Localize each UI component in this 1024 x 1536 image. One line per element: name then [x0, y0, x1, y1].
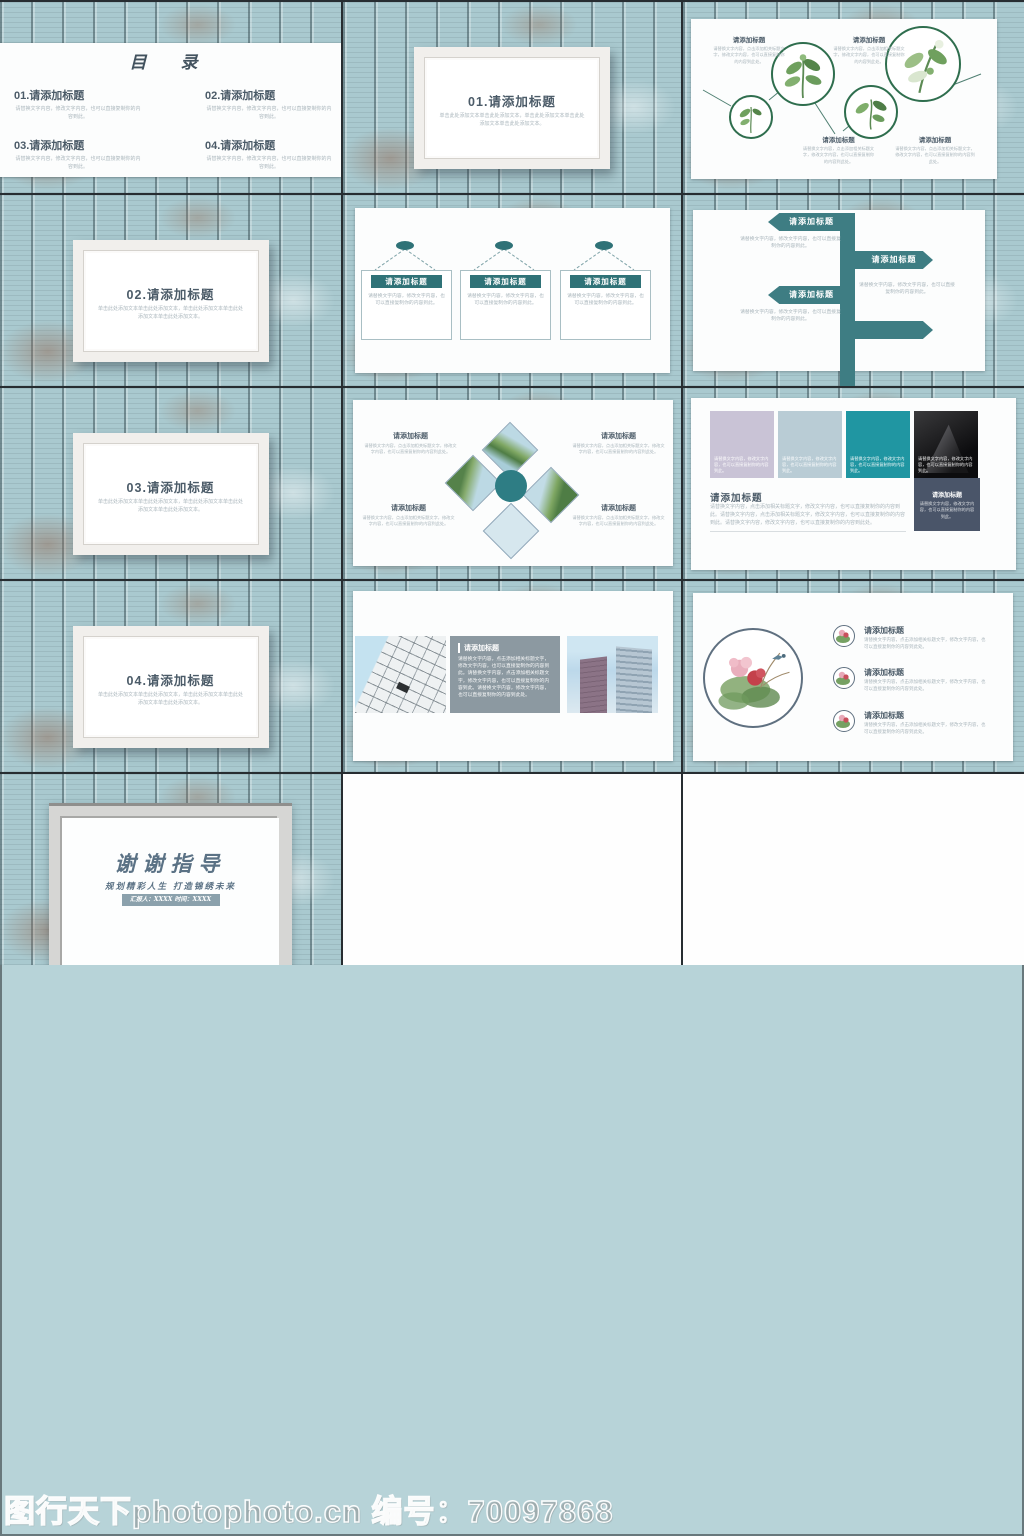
center-circle [495, 470, 527, 502]
tower-left [580, 656, 607, 713]
dark-slate-box: 请添加标题 请替换文字内容，修改文字内容，也可以直接复制你的内容到此。 [914, 478, 980, 531]
dark-box-title: 请添加标题 [914, 490, 980, 499]
plants-item-3: 请添加标题 请替换文字内容，点击添加相关标题文字，修改文字内容，也可以直接复制你… [801, 134, 876, 165]
slide-thumbnail-grid: 目 录 01.请添加标题 请替换文字内容，修改文字内容，也可以直接复制你的内容到… [0, 0, 1024, 965]
lotus-mini-icon [834, 711, 854, 731]
section-title: 03.请添加标题 [83, 477, 259, 496]
diamonds-item-4: 请添加标题 请替换文字内容，点击添加相关标题文字，修改文字内容，也可以直接复制你… [571, 503, 666, 528]
slide-thumb-section-03: 03.请添加标题 单击此处添加文本单击此处添加文本，单击此处添加文本单击此处添加… [0, 388, 341, 579]
slide-thumb-section-04: 04.请添加标题 单击此处添加文本单击此处添加文本，单击此处添加文本单击此处添加… [0, 581, 341, 772]
slide-thumb-colorblocks: 请替换文字内容，修改文字内容，也可以直接复制你的内容到此。 请替换文字内容，修改… [683, 388, 1024, 579]
slide-thumb-section-02: 02.请添加标题 单击此处添加文本单击此处添加文本，单击此处添加文本单击此处添加… [0, 195, 341, 386]
signpost-desc-2: 请替换文字内容，修改文字内容，也可以直接复制你的内容到此。 [858, 282, 956, 296]
hanging-card-1: 请添加标题 请替换文字内容，修改文字内容，也可以直接复制你的内容到此。 [361, 270, 452, 340]
hanging-card-2: 请添加标题 请替换文字内容，修改文字内容，也可以直接复制你的内容到此。 [460, 270, 551, 340]
plants-item-1: 请添加标题 请替换文字内容，点击添加相关标题文字，修改文字内容，也可以直接复制你… [713, 34, 785, 65]
buildings-text-box: 请添加标题 请替换文字内容，点击添加相关标题文字，修改文字内容，也可以直接复制你… [450, 636, 560, 713]
slide-thumb-thanks: 谢谢指导 规划精彩人生 打造锦绣未来 汇报人：XXXX 时间：XXXX [0, 774, 341, 965]
thanks-title: 谢谢指导 [62, 848, 279, 878]
lotus-mini-icon [834, 626, 854, 646]
item-desc: 请替换文字内容，点击添加相关标题文字，修改文字内容，也可以直接复制你的内容到此处… [895, 146, 975, 165]
toc-item-4: 04.请添加标题 请替换文字内容，修改文字内容，也可以直接复制你的内容到此。 [205, 137, 333, 171]
plant-circle-small [729, 95, 773, 139]
lotus-item-desc: 请替换文字内容，点击添加相关标题文字，修改文字内容，也可以直接复制你的内容到此处… [864, 679, 986, 693]
section-title: 04.请添加标题 [83, 670, 259, 689]
card-title: 请添加标题 [570, 275, 641, 288]
lotus-mini-circle [833, 667, 855, 689]
card-desc: 请替换文字内容，修改文字内容，也可以直接复制你的内容到此。 [566, 293, 645, 307]
signpost-arrow-2: 请添加标题 [855, 251, 933, 269]
toc-item-title: 02.请添加标题 [205, 87, 333, 103]
plant-icon [731, 97, 771, 137]
toc-item-desc: 请替换文字内容，修改文字内容，也可以直接复制你的内容到此。 [14, 156, 142, 171]
section-desc: 单击此处添加文本单击此处添加文本，单击此处添加文本单击此处添加文本单击此处添加文… [438, 113, 586, 128]
diamonds-item-1: 请添加标题 请替换文字内容，点击添加相关标题文字，修改文字内容，也可以直接复制你… [363, 431, 458, 456]
card-title: 请添加标题 [470, 275, 541, 288]
color-block-lavender: 请替换文字内容，修改文字内容，也可以直接复制你的内容到此。 [710, 411, 774, 478]
slide-thumb-diamonds: 请添加标题 请替换文字内容，点击添加相关标题文字，修改文字内容，也可以直接复制你… [343, 388, 681, 579]
item-title: 请添加标题 [833, 34, 905, 44]
lotus-item-title: 请添加标题 [864, 710, 904, 721]
section-desc: 单击此处添加文本单击此处添加文本，单击此处添加文本单击此处添加文本单击此处添加文… [97, 499, 245, 514]
slide-thumb-signpost: 请添加标题 请替换文字内容，修改文字内容，也可以直接复制你的内容到此。 请添加标… [683, 195, 1024, 386]
item-desc: 请替换文字内容，点击添加相关标题文字，修改文字内容，也可以直接复制你的内容到此处… [833, 46, 905, 65]
color-block-teal: 请替换文字内容，修改文字内容，也可以直接复制你的内容到此。 [846, 411, 910, 478]
lotus-item-desc: 请替换文字内容，点击添加相关标题文字，修改文字内容，也可以直接复制你的内容到此处… [864, 637, 986, 651]
block-caption: 请替换文字内容，修改文字内容，也可以直接复制你的内容到此。 [850, 456, 907, 474]
toc-item-desc: 请替换文字内容，修改文字内容，也可以直接复制你的内容到此。 [205, 106, 333, 121]
item-desc: 请替换文字内容，点击添加相关标题文字，修改文字内容，也可以直接复制你的内容到此处… [571, 443, 666, 456]
building-photo-left [355, 636, 446, 713]
toc-item-title: 03.请添加标题 [14, 137, 142, 153]
item-desc: 请替换文字内容，点击添加相关标题文字，修改文字内容，也可以直接复制你的内容到此处… [801, 146, 876, 165]
section-frame: 03.请添加标题 单击此处添加文本单击此处添加文本，单击此处添加文本单击此处添加… [73, 433, 269, 555]
pin-icon [396, 241, 414, 250]
slide-thumb-buildings: 请添加标题 请替换文字内容，点击添加相关标题文字，修改文字内容，也可以直接复制你… [343, 581, 681, 772]
colorblocks-heading: 请添加标题 [710, 490, 763, 504]
block-caption: 请替换文字内容，修改文字内容，也可以直接复制你的内容到此。 [782, 456, 839, 474]
lotus-mini-circle [833, 625, 855, 647]
lotus-mini-circle [833, 710, 855, 732]
slide-thumb-toc: 目 录 01.请添加标题 请替换文字内容，修改文字内容，也可以直接复制你的内容到… [0, 2, 341, 193]
toc-item-desc: 请替换文字内容，修改文字内容，也可以直接复制你的内容到此。 [205, 156, 333, 171]
building-photo-right [567, 636, 658, 713]
lotus-item-title: 请添加标题 [864, 667, 904, 678]
item-title: 请添加标题 [363, 431, 458, 441]
watermark-text: 图行天下photophoto.cn 编号：70097868 [4, 1486, 613, 1531]
toc-item-title: 01.请添加标题 [14, 87, 142, 103]
diamonds-item-3: 请添加标题 请替换文字内容，点击添加相关标题文字，修改文字内容，也可以直接复制你… [361, 503, 456, 528]
colorblocks-paragraph: 请替换文字内容，点击添加相关标题文字，修改文字内容，也可以直接复制你的内容到此。… [710, 504, 906, 532]
section-desc: 单击此处添加文本单击此处添加文本，单击此处添加文本单击此处添加文本单击此处添加文… [97, 306, 245, 321]
dark-box-desc: 请替换文字内容，修改文字内容，也可以直接复制你的内容到此。 [919, 501, 975, 520]
slide-thumb-blank-1 [343, 774, 681, 965]
thanks-photo-frame: 谢谢指导 规划精彩人生 打造锦绣未来 汇报人：XXXX 时间：XXXX [49, 803, 292, 965]
toc-item-2: 02.请添加标题 请替换文字内容，修改文字内容，也可以直接复制你的内容到此。 [205, 87, 333, 121]
color-block-blue: 请替换文字内容，修改文字内容，也可以直接复制你的内容到此。 [778, 411, 842, 478]
lotus-item-title: 请添加标题 [864, 625, 904, 636]
item-title: 请添加标题 [361, 503, 456, 513]
thanks-subtitle: 规划精彩人生 打造锦绣未来 [62, 880, 279, 892]
buildings-box-text: 请替换文字内容，点击添加相关标题文字，修改文字内容，也可以直接复制你的内容到此。… [458, 656, 552, 699]
lotus-painting [705, 630, 801, 726]
block-caption: 请替换文字内容，修改文字内容，也可以直接复制你的内容到此。 [918, 456, 975, 474]
pin-icon [495, 241, 513, 250]
diamonds-item-2: 请添加标题 请替换文字内容，点击添加相关标题文字，修改文字内容，也可以直接复制你… [571, 431, 666, 456]
item-title: 请添加标题 [571, 431, 666, 441]
section-desc: 单击此处添加文本单击此处添加文本，单击此处添加文本单击此处添加文本单击此处添加文… [97, 692, 245, 707]
slide-thumb-plant-circles: 请添加标题 请替换文字内容，点击添加相关标题文字，修改文字内容，也可以直接复制你… [683, 2, 1024, 193]
item-desc: 请替换文字内容，点击添加相关标题文字，修改文字内容，也可以直接复制你的内容到此处… [361, 515, 456, 528]
lotus-large-circle [703, 628, 803, 728]
window-dark [396, 682, 410, 693]
pin-icon [595, 241, 613, 250]
toc-item-1: 01.请添加标题 请替换文字内容，修改文字内容，也可以直接复制你的内容到此。 [14, 87, 142, 121]
section-frame: 01.请添加标题 单击此处添加文本单击此处添加文本，单击此处添加文本单击此处添加… [414, 47, 610, 169]
toc-item-3: 03.请添加标题 请替换文字内容，修改文字内容，也可以直接复制你的内容到此。 [14, 137, 142, 171]
item-title: 请添加标题 [801, 134, 876, 144]
signpost-arrow-1: 请添加标题 [768, 213, 855, 231]
buildings-box-title: 请添加标题 [458, 643, 499, 653]
plants-item-2: 请添加标题 请替换文字内容，点击添加相关标题文字，修改文字内容，也可以直接复制你… [833, 34, 905, 65]
lotus-mini-icon [834, 668, 854, 688]
lotus-item-desc: 请替换文字内容，点击添加相关标题文字，修改文字内容，也可以直接复制你的内容到此处… [864, 722, 986, 736]
mountain-photo-block: 请替换文字内容，修改文字内容，也可以直接复制你的内容到此。 [914, 411, 978, 478]
thanks-presenter-bar: 汇报人：XXXX 时间：XXXX [122, 894, 220, 906]
item-title: 请添加标题 [571, 503, 666, 513]
hanging-card-3: 请添加标题 请替换文字内容，修改文字内容，也可以直接复制你的内容到此。 [560, 270, 651, 340]
block-caption: 请替换文字内容，修改文字内容，也可以直接复制你的内容到此。 [714, 456, 771, 474]
toc-item-desc: 请替换文字内容，修改文字内容，也可以直接复制你的内容到此。 [14, 106, 142, 121]
slide-thumb-blank-2 [683, 774, 1024, 965]
slide-thumb-lotus: 请添加标题 请替换文字内容，点击添加相关标题文字，修改文字内容，也可以直接复制你… [683, 581, 1024, 772]
toc-item-title: 04.请添加标题 [205, 137, 333, 153]
section-frame: 04.请添加标题 单击此处添加文本单击此处添加文本，单击此处添加文本单击此处添加… [73, 626, 269, 748]
template-preview-sheet: 职业生涯规划 规划精彩人生 打造锦绣未来 汇报人：XXXX 时间：XXXX 目 … [0, 0, 1024, 1536]
item-desc: 请替换文字内容，点击添加相关标题文字，修改文字内容，也可以直接复制你的内容到此处… [363, 443, 458, 456]
toc-title: 目 录 [0, 48, 341, 73]
item-desc: 请替换文字内容，点击添加相关标题文字，修改文字内容，也可以直接复制你的内容到此处… [713, 46, 785, 65]
item-title: 请添加标题 [713, 34, 785, 44]
thanks-slide-surface: 谢谢指导 规划精彩人生 打造锦绣未来 汇报人：XXXX 时间：XXXX [62, 818, 279, 965]
signpost-desc-1: 请替换文字内容，修改文字内容，也可以直接复制你的内容到此。 [738, 236, 843, 250]
item-title: 请添加标题 [895, 134, 975, 144]
card-title: 请添加标题 [371, 275, 442, 288]
slide-thumb-section-01: 01.请添加标题 单击此处添加文本单击此处添加文本，单击此处添加文本单击此处添加… [343, 2, 681, 193]
slide-thumb-hanging-cards: 请添加标题 请替换文字内容，修改文字内容，也可以直接复制你的内容到此。 请添加标… [343, 195, 681, 386]
signpost-arrow-4 [855, 321, 933, 339]
plants-item-4: 请添加标题 请替换文字内容，点击添加相关标题文字，修改文字内容，也可以直接复制你… [895, 134, 975, 165]
card-desc: 请替换文字内容，修改文字内容，也可以直接复制你的内容到此。 [466, 293, 545, 307]
toc-panel: 目 录 01.请添加标题 请替换文字内容，修改文字内容，也可以直接复制你的内容到… [0, 43, 341, 177]
card-desc: 请替换文字内容，修改文字内容，也可以直接复制你的内容到此。 [367, 293, 446, 307]
section-title: 01.请添加标题 [424, 91, 600, 110]
signpost-arrow-3: 请添加标题 [768, 286, 855, 304]
section-frame: 02.请添加标题 单击此处添加文本单击此处添加文本，单击此处添加文本单击此处添加… [73, 240, 269, 362]
tower-right [616, 647, 652, 713]
item-desc: 请替换文字内容，点击添加相关标题文字，修改文字内容，也可以直接复制你的内容到此处… [571, 515, 666, 528]
signpost-desc-3: 请替换文字内容，修改文字内容，也可以直接复制你的内容到此。 [738, 309, 843, 323]
section-title: 02.请添加标题 [83, 284, 259, 303]
